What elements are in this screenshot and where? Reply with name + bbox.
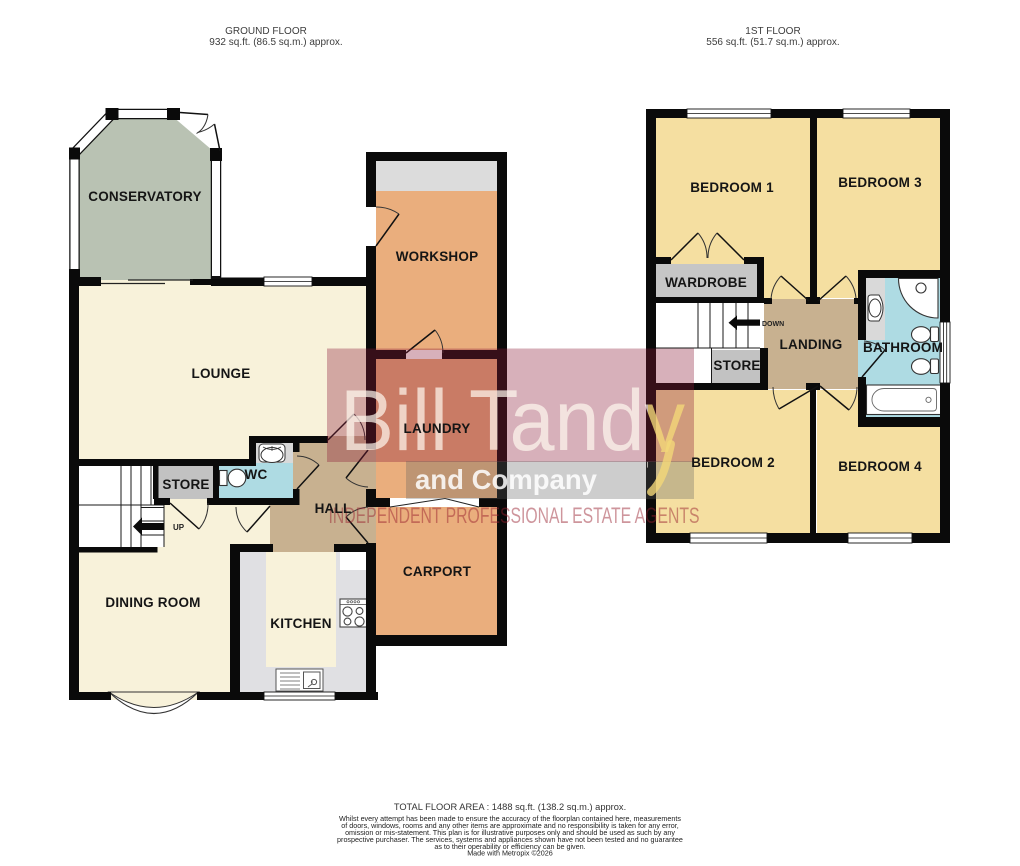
svg-text:BEDROOM 2: BEDROOM 2	[691, 455, 775, 470]
svg-text:1ST FLOOR: 1ST FLOOR	[745, 26, 800, 37]
svg-text:Made with Metropix ©2026: Made with Metropix ©2026	[467, 849, 553, 858]
svg-text:932 sq.ft. (86.5 sq.m.) approx: 932 sq.ft. (86.5 sq.m.) approx.	[209, 37, 342, 48]
svg-text:CONSERVATORY: CONSERVATORY	[88, 189, 201, 204]
svg-text:BEDROOM 3: BEDROOM 3	[838, 175, 922, 190]
svg-text:HALL: HALL	[315, 501, 352, 516]
svg-text:WC: WC	[245, 467, 268, 482]
svg-text:WORKSHOP: WORKSHOP	[396, 249, 479, 264]
svg-text:TOTAL FLOOR AREA : 1488 sq.ft.: TOTAL FLOOR AREA : 1488 sq.ft. (138.2 sq…	[394, 802, 626, 812]
svg-text:DINING ROOM: DINING ROOM	[105, 595, 200, 610]
svg-text:DOWN: DOWN	[762, 321, 784, 328]
svg-text:Bill Tandy: Bill Tandy	[340, 373, 685, 469]
svg-text:BEDROOM 4: BEDROOM 4	[838, 459, 922, 474]
svg-text:STORE: STORE	[162, 477, 209, 492]
svg-text:556 sq.ft. (51.7 sq.m.) approx: 556 sq.ft. (51.7 sq.m.) approx.	[706, 37, 839, 48]
svg-text:INDEPENDENT PROFESSIONAL ESTAT: INDEPENDENT PROFESSIONAL ESTATE AGENTS	[329, 503, 700, 528]
svg-text:STORE: STORE	[713, 358, 760, 373]
svg-text:LAUNDRY: LAUNDRY	[404, 421, 471, 436]
svg-text:LOUNGE: LOUNGE	[192, 366, 251, 381]
svg-text:BATHROOM: BATHROOM	[863, 340, 943, 355]
svg-text:and Company: and Company	[415, 464, 597, 495]
svg-text:LANDING: LANDING	[780, 337, 843, 352]
svg-text:CARPORT: CARPORT	[403, 564, 472, 579]
svg-text:BEDROOM 1: BEDROOM 1	[690, 180, 774, 195]
svg-text:WARDROBE: WARDROBE	[665, 275, 747, 290]
svg-text:KITCHEN: KITCHEN	[270, 616, 331, 631]
svg-text:GROUND FLOOR: GROUND FLOOR	[225, 26, 307, 37]
svg-text:UP: UP	[173, 523, 185, 532]
